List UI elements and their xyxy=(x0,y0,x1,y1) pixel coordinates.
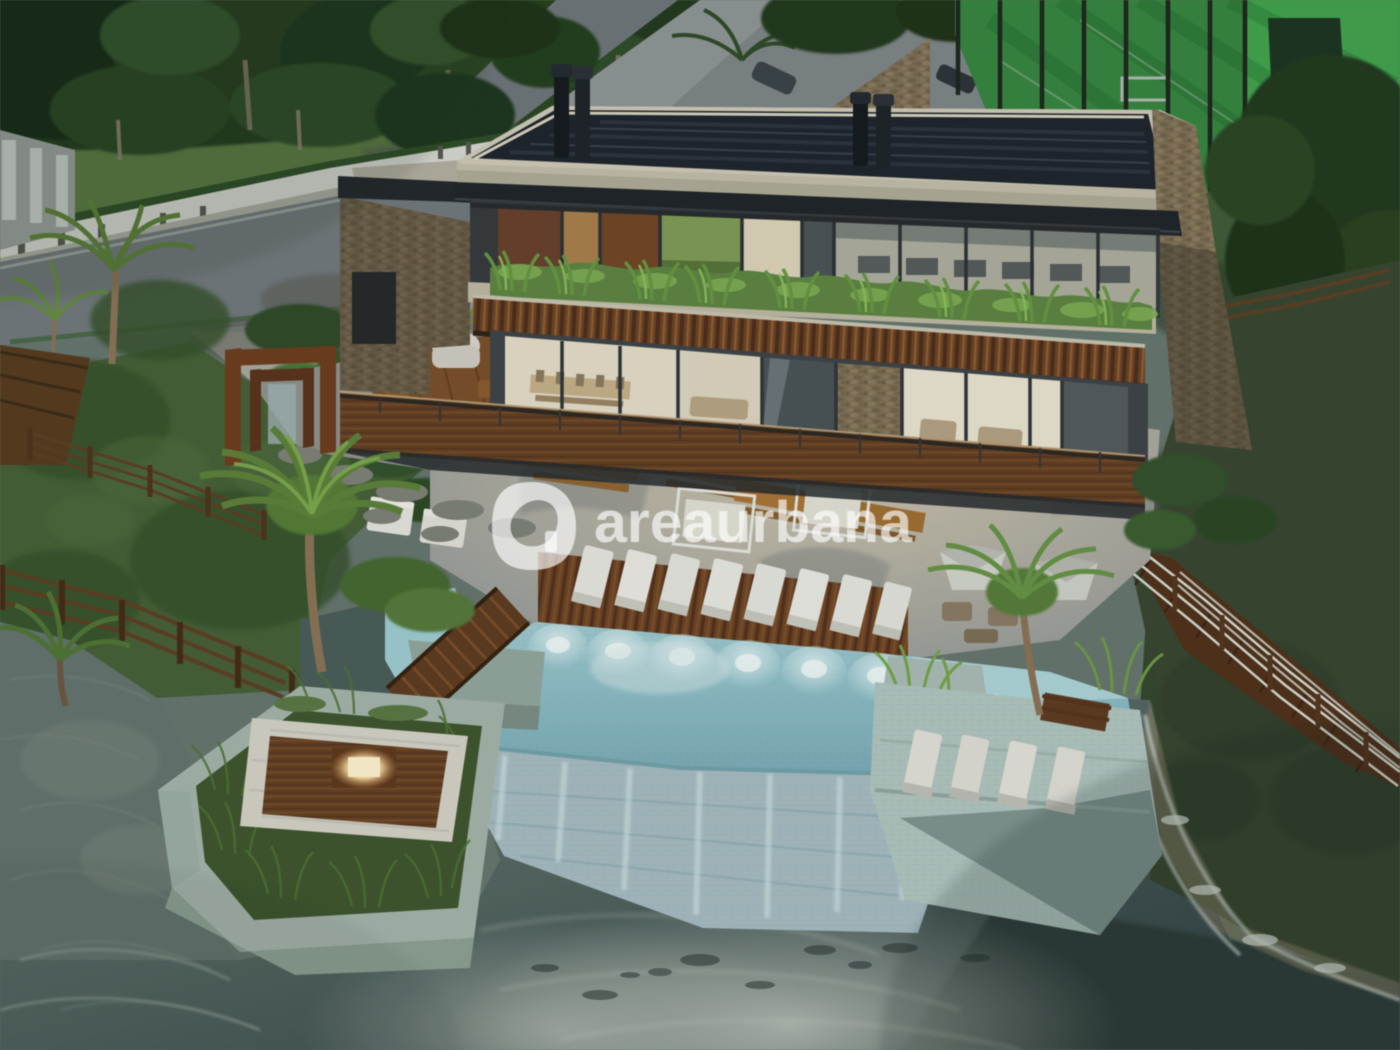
svg-text:areaurbana: areaurbana xyxy=(594,490,913,555)
